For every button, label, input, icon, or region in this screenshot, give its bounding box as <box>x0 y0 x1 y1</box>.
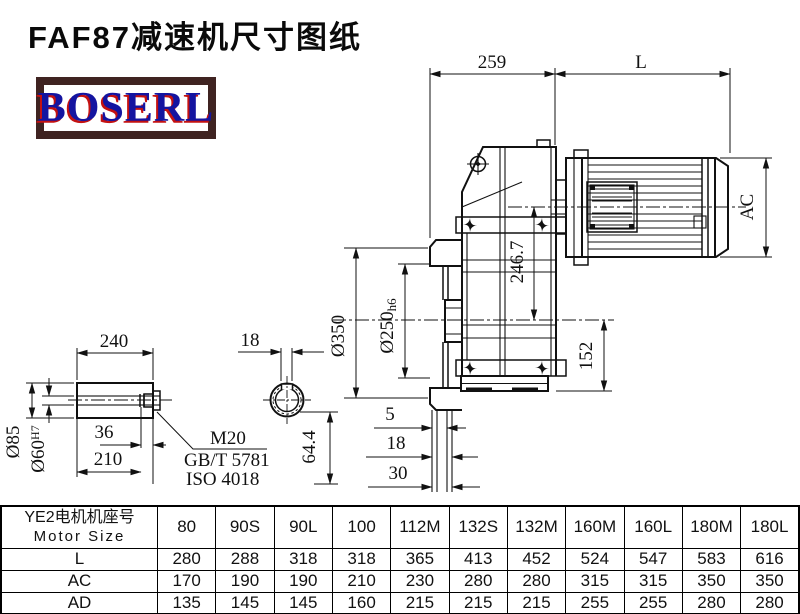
drawing-page: FAF87减速机尺寸图纸 BOSERL <box>0 0 800 614</box>
cell: 280 <box>158 548 216 570</box>
col-header: 100 <box>332 506 390 548</box>
header-label-en: Motor Size <box>2 528 157 545</box>
cell: 280 <box>741 592 799 614</box>
table-header-label: YE2电机机座号 Motor Size <box>1 506 158 548</box>
col-header: 90L <box>274 506 332 548</box>
header-label-cn: YE2电机机座号 <box>2 509 157 527</box>
cell: 255 <box>566 592 624 614</box>
dim-350: Ø350 <box>328 315 349 357</box>
dim-210: 210 <box>94 449 123 470</box>
col-header: 180M <box>682 506 740 548</box>
col-header: 160L <box>624 506 682 548</box>
cell: 315 <box>566 570 624 592</box>
col-header: 112M <box>391 506 449 548</box>
cell: 190 <box>216 570 274 592</box>
cell: 215 <box>391 592 449 614</box>
cell: 215 <box>449 592 507 614</box>
dim-18: 18 <box>387 433 406 454</box>
cell: 350 <box>682 570 740 592</box>
table-header-row: YE2电机机座号 Motor Size 80 90S 90L 100 112M … <box>1 506 799 548</box>
label-iso4018: ISO 4018 <box>186 469 259 490</box>
cell: 318 <box>274 548 332 570</box>
cell: 170 <box>158 570 216 592</box>
dim-246-7: 246.7 <box>507 241 528 284</box>
cell: 255 <box>624 592 682 614</box>
cell: 350 <box>741 570 799 592</box>
cell: 280 <box>682 592 740 614</box>
output-flange-outline <box>430 240 462 492</box>
dim-AC: AC <box>737 194 758 220</box>
dim-152: 152 <box>576 342 597 371</box>
row-label: L <box>1 548 158 570</box>
cell: 315 <box>624 570 682 592</box>
cell: 288 <box>216 548 274 570</box>
dim-250h6: Ø250h6 <box>377 298 399 354</box>
cell: 547 <box>624 548 682 570</box>
cell: 280 <box>449 570 507 592</box>
cell: 280 <box>507 570 565 592</box>
row-label: AD <box>1 592 158 614</box>
motor-size-table: YE2电机机座号 Motor Size 80 90S 90L 100 112M … <box>0 505 800 614</box>
label-m20: M20 <box>210 428 246 449</box>
col-header: 80 <box>158 506 216 548</box>
dimension-lines-main: 259 L AC 246.7 152 Ø350 Ø250h6 <box>328 52 772 487</box>
dim-5: 5 <box>385 404 395 425</box>
cell: 145 <box>216 592 274 614</box>
dim-240: 240 <box>100 331 129 352</box>
dimension-drawing: 259 L AC 246.7 152 Ø350 Ø250h6 <box>0 0 800 505</box>
dim-key18: 18 <box>241 330 260 351</box>
cell: 524 <box>566 548 624 570</box>
dim-L: L <box>635 52 647 73</box>
hollow-shaft-view: 240 Ø85 Ø60H7 36 210 M20 GB/T 5 <box>3 331 270 490</box>
col-header: 90S <box>216 506 274 548</box>
dim-64-4: 64.4 <box>299 430 320 464</box>
dim-60H7: Ø60H7 <box>28 425 49 472</box>
cell: 135 <box>158 592 216 614</box>
cell: 452 <box>507 548 565 570</box>
cell: 365 <box>391 548 449 570</box>
cell: 215 <box>507 592 565 614</box>
bolt-mark-icon <box>467 153 489 175</box>
cell: 616 <box>741 548 799 570</box>
col-header: 132S <box>449 506 507 548</box>
table-row-AC: AC 170 190 190 210 230 280 280 315 315 3… <box>1 570 799 592</box>
col-header: 160M <box>566 506 624 548</box>
dim-30: 30 <box>389 463 408 484</box>
cell: 230 <box>391 570 449 592</box>
cell: 190 <box>274 570 332 592</box>
cell: 160 <box>332 592 390 614</box>
label-gbt5781: GB/T 5781 <box>184 450 270 471</box>
table-row-L: L 280 288 318 318 365 413 452 524 547 58… <box>1 548 799 570</box>
cell: 318 <box>332 548 390 570</box>
dim-36: 36 <box>95 422 114 443</box>
row-label: AC <box>1 570 158 592</box>
cell: 583 <box>682 548 740 570</box>
dim-85: Ø85 <box>3 426 24 459</box>
col-header: 180L <box>741 506 799 548</box>
cell: 210 <box>332 570 390 592</box>
cell: 413 <box>449 548 507 570</box>
col-header: 132M <box>507 506 565 548</box>
dim-259: 259 <box>478 52 507 73</box>
cell: 145 <box>274 592 332 614</box>
table-row-AD: AD 135 145 145 160 215 215 215 255 255 2… <box>1 592 799 614</box>
